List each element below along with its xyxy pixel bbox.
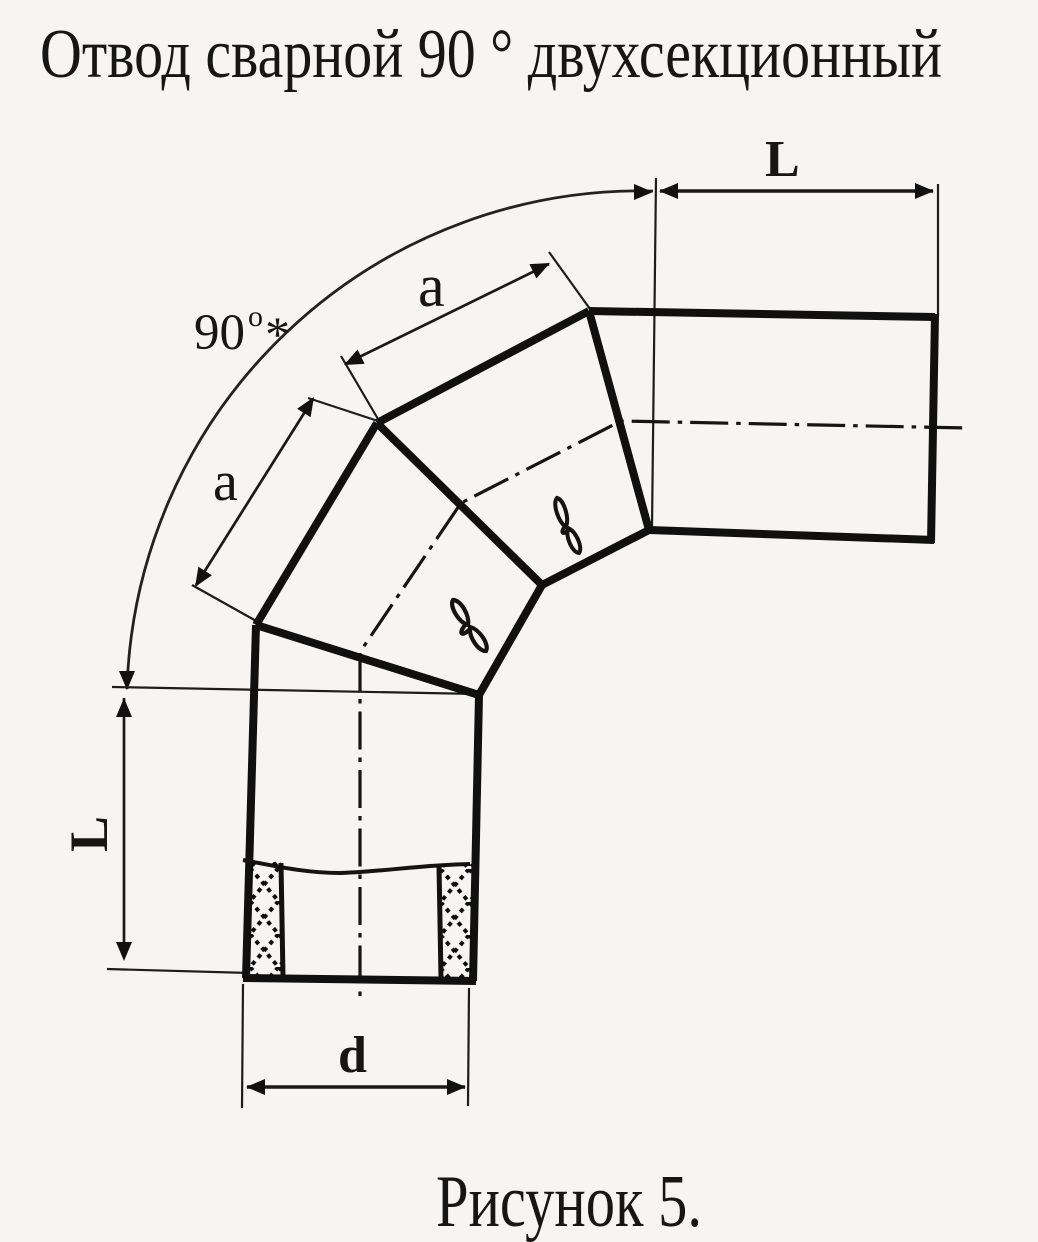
svg-text:a: a — [213, 451, 238, 513]
svg-text:L: L — [59, 816, 119, 852]
svg-text:*: * — [265, 306, 290, 362]
svg-text:a: a — [418, 253, 445, 319]
svg-text:L: L — [765, 131, 800, 188]
svg-text:90: 90 — [194, 305, 245, 361]
svg-text:Отвод сварной 90 ° двухсекцион: Отвод сварной 90 ° двухсекционный — [40, 16, 942, 93]
svg-text:d: d — [338, 1027, 367, 1084]
svg-text:Рисунок 5.: Рисунок 5. — [436, 1161, 702, 1242]
svg-text:о: о — [248, 300, 263, 333]
